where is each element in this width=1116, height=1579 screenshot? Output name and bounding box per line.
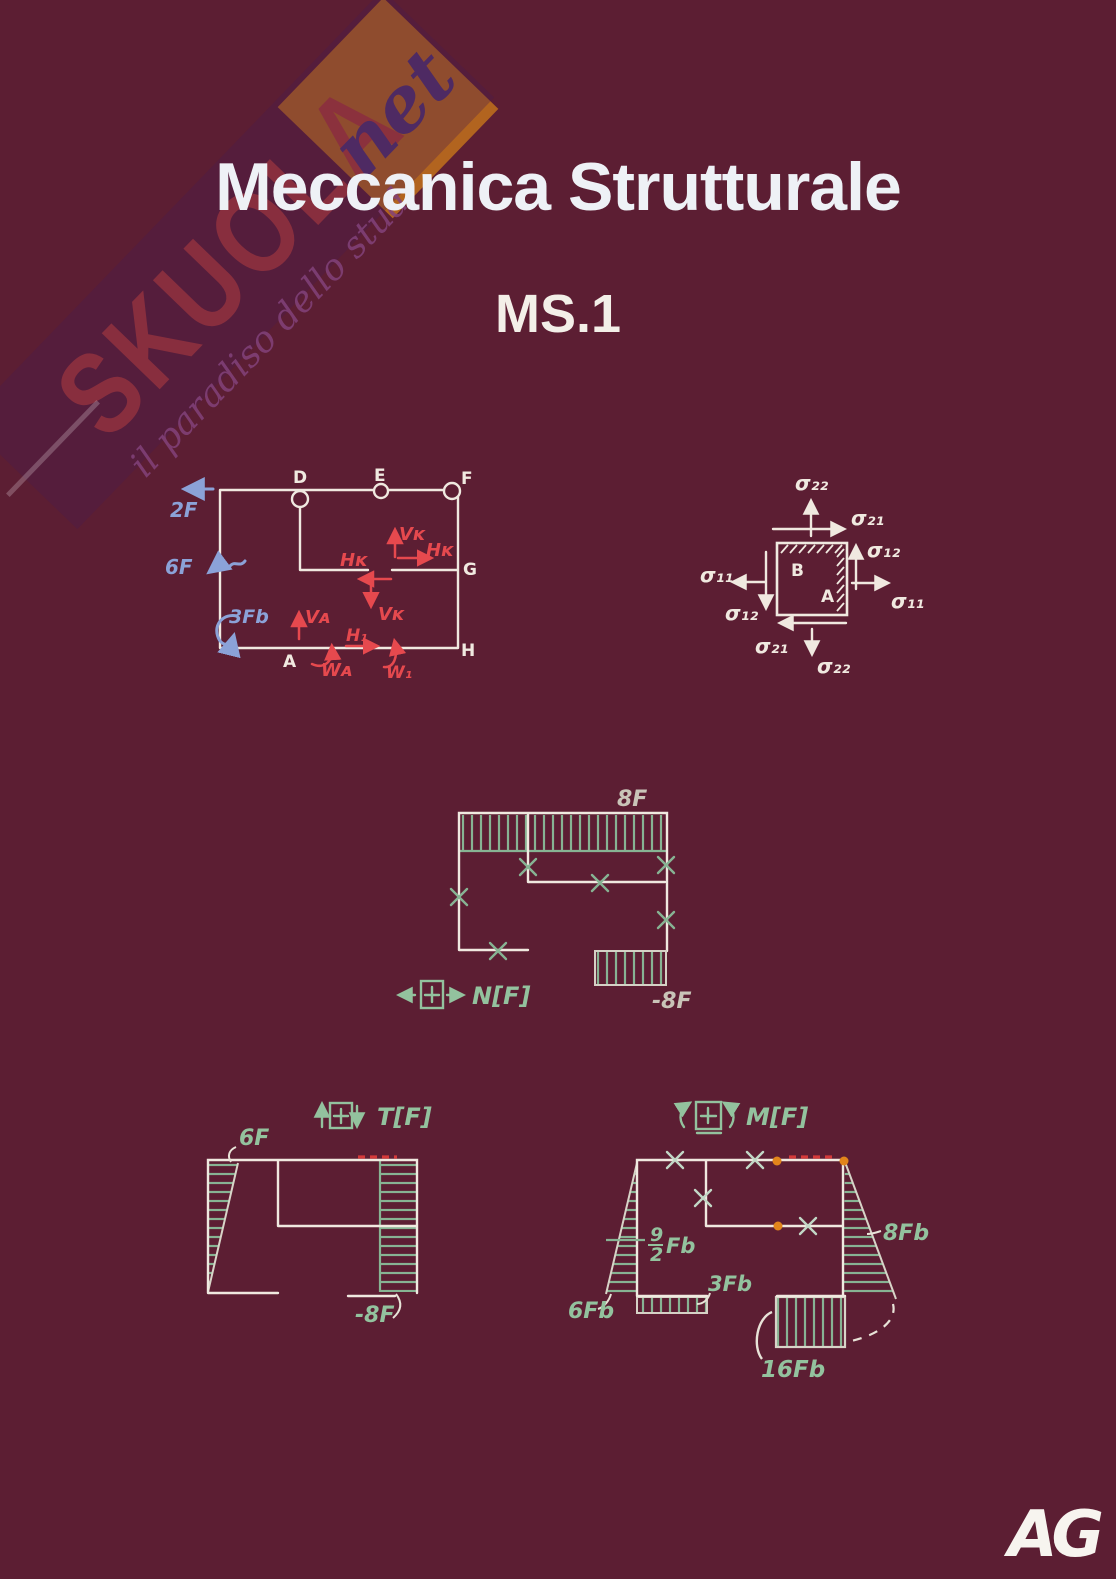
n-top-hatch <box>460 815 666 851</box>
node-label-f: F <box>461 469 473 489</box>
node-label-a: A <box>283 652 297 672</box>
ag-logo: AG <box>1003 1498 1102 1572</box>
va-label: Vᴀ <box>305 607 331 628</box>
bending-moment-diagram: 9 2 Fb 6Fb 3Fb 8Fb 16Fb M[F] <box>568 1102 929 1383</box>
h1-label: H₁ <box>346 626 368 646</box>
n-legend-icon <box>401 981 461 1008</box>
m-zero-marks <box>667 1152 816 1234</box>
stress-element-diagram: σ₂₂ σ₂₁ σ₁₂ σ₁₁ σ₁₁ σ₁₂ σ₂₁ σ₂₂ B A <box>700 471 924 678</box>
hk-top-label: Hᴋ <box>426 540 454 561</box>
t-right-value: -8F <box>355 1303 394 1328</box>
notes-cover-page: SKUOLA net il paradiso dello stud Meccan… <box>0 0 1116 1579</box>
w1-label: W₁ <box>386 663 412 683</box>
hinge-f-icon <box>444 483 460 499</box>
m-frac-num: 9 <box>650 1224 663 1246</box>
m-right-value: 8Fb <box>883 1221 929 1246</box>
shear-force-diagram: 6F -8F T[F] <box>208 1103 432 1328</box>
sigma22-top-label: σ₂₂ <box>795 471 828 495</box>
vk-top-label: Vᴋ <box>399 524 426 545</box>
region-a-label: A <box>821 587 835 607</box>
m-bottom-right-value: 16Fb <box>761 1357 825 1383</box>
stress-square <box>777 543 847 615</box>
m-16fb-curl <box>757 1312 772 1359</box>
node-label-d: D <box>293 468 307 488</box>
vk-bottom-label: Vᴋ <box>378 604 405 625</box>
n-top-value: 8F <box>617 787 647 812</box>
wa-label: Wᴀ <box>321 660 353 681</box>
sigma11-left-label: σ₁₁ <box>700 563 733 587</box>
sigma21-bottom-label: σ₂₁ <box>755 634 788 658</box>
m-left-value: 6Fb <box>568 1299 614 1324</box>
load-label-2f: 2F <box>170 498 198 522</box>
m-legend-icon <box>681 1102 734 1133</box>
n-legend-label: N[F] <box>472 982 530 1010</box>
frame-diagram: D E F G H A 2F 6F 3Fb <box>165 466 477 683</box>
sigma21-top-label: σ₂₁ <box>851 506 884 530</box>
t-legend-icon <box>322 1103 357 1128</box>
hinge-e-icon <box>374 484 388 498</box>
m-16fb-rect <box>776 1297 845 1347</box>
page-subtitle: MS.1 <box>0 283 1116 345</box>
sigma12-left-label: σ₁₂ <box>725 601 758 625</box>
m-dashed-link <box>851 1304 894 1341</box>
page-title: Meccanica Strutturale <box>0 148 1116 226</box>
m-legend-label: M[F] <box>746 1103 808 1131</box>
m-3fb-rect <box>637 1297 707 1313</box>
region-b-label: B <box>791 561 804 581</box>
n-bottom-value: -8F <box>652 989 691 1014</box>
sigma12-right-label: σ₁₂ <box>867 538 900 562</box>
n-zero-marks <box>451 857 674 959</box>
m-frac-den: 2 <box>650 1244 663 1266</box>
m-orange-dots <box>773 1157 849 1231</box>
hinge-d-icon <box>292 491 308 507</box>
t-legend-label: T[F] <box>377 1103 432 1131</box>
load-6f-arrow <box>212 561 245 570</box>
diagram-sheet: D E F G H A 2F 6F 3Fb <box>0 0 1116 1579</box>
node-label-h: H <box>461 641 475 661</box>
axial-force-diagram: 8F -8F N[F] <box>401 787 691 1014</box>
m-frac-unit: Fb <box>666 1234 695 1258</box>
load-label-3fb: 3Fb <box>229 606 269 628</box>
node-label-e: E <box>374 466 386 486</box>
sigma22-bottom-label: σ₂₂ <box>817 654 850 678</box>
hk-bottom-label: Hᴋ <box>340 550 368 571</box>
t-left-value: 6F <box>239 1126 269 1151</box>
sigma11-right-label: σ₁₁ <box>891 589 924 613</box>
node-label-g: G <box>463 560 477 580</box>
m-bottom-left-value: 3Fb <box>708 1272 752 1296</box>
n-bottom-hatch <box>595 951 666 985</box>
load-label-6f: 6F <box>165 555 193 579</box>
